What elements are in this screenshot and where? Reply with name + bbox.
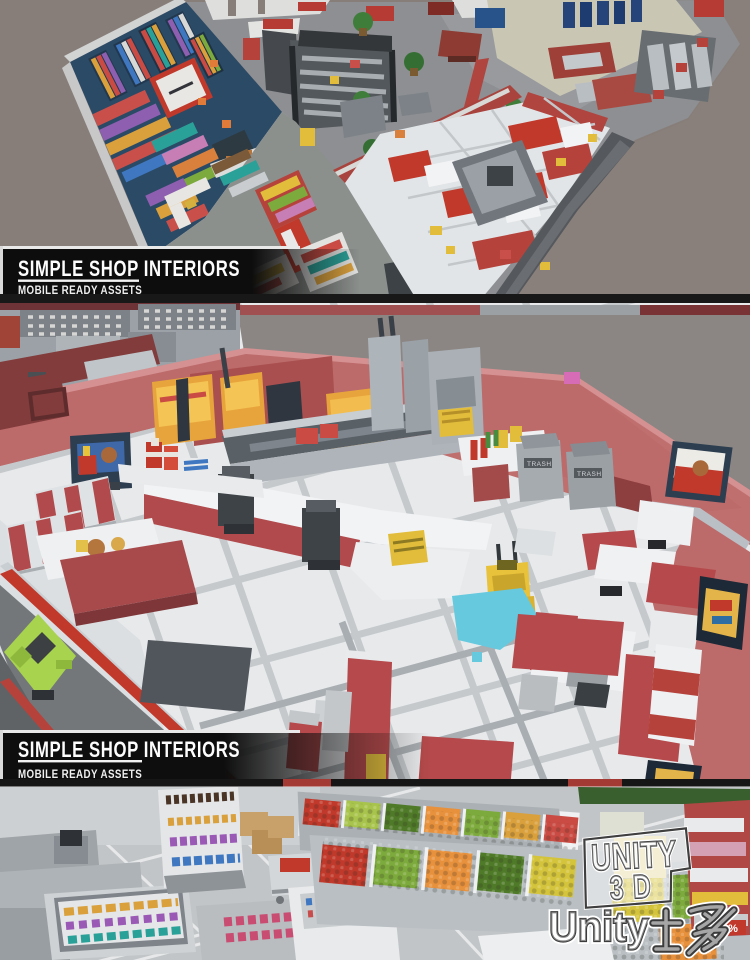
svg-text:Unity: Unity	[549, 903, 649, 950]
svg-text:TRASH: TRASH	[527, 461, 552, 468]
svg-text:TRASH: TRASH	[577, 471, 602, 478]
svg-text:3D: 3D	[609, 868, 661, 907]
svg-text:SIMPLE SHOP INTERIORS: SIMPLE SHOP INTERIORS	[18, 257, 240, 282]
svg-text:SIMPLE SHOP INTERIORS: SIMPLE SHOP INTERIORS	[18, 738, 240, 763]
